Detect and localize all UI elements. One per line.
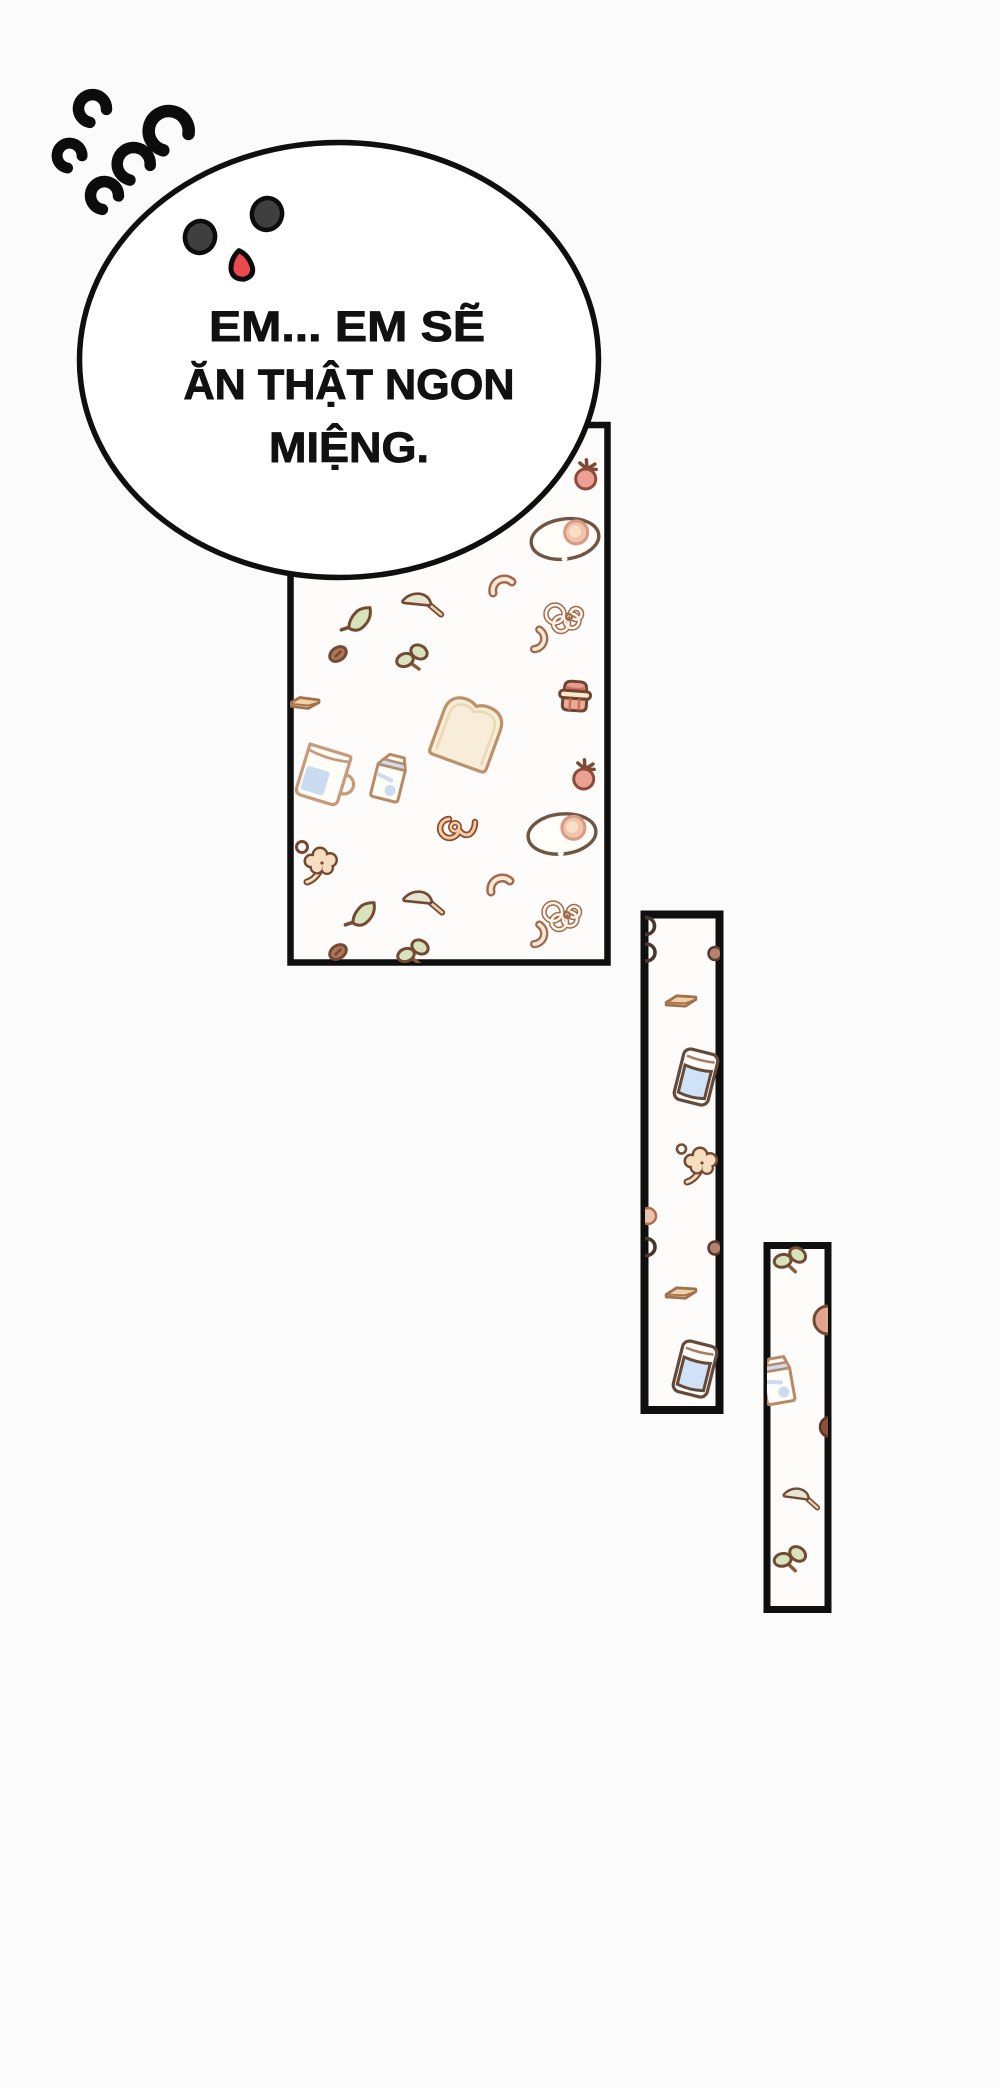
svg-text:EM... EM SẼ: EM... EM SẼ	[209, 303, 485, 351]
svg-text:ĂN THẬT NGON: ĂN THẬT NGON	[184, 360, 515, 409]
svg-text:MIỆNG.: MIỆNG.	[269, 423, 429, 472]
